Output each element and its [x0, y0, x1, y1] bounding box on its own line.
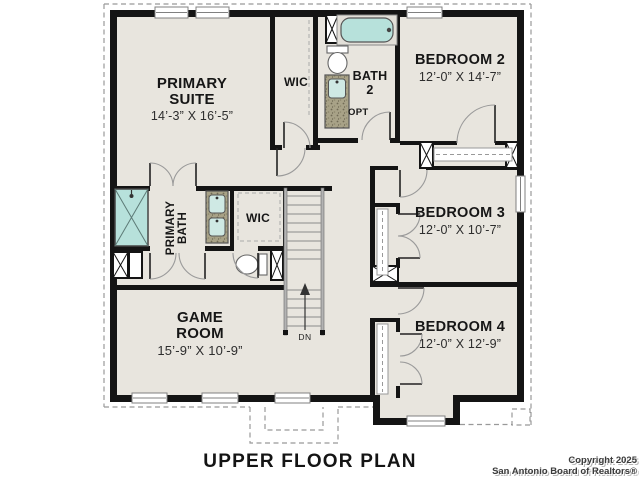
- room-name: GAME ROOM: [160, 310, 240, 342]
- optional-feature-label: OPT: [348, 107, 382, 118]
- shower-icon: [115, 189, 148, 246]
- toilet-icon-bath2: [327, 46, 348, 74]
- room-name: BATH 2: [352, 70, 388, 97]
- vanity-icon-bath2: [325, 75, 349, 128]
- room-label-wic-middle: WIC: [237, 212, 279, 225]
- copyright-watermark: Copyright 2025 San Antonio Board of Real…: [492, 455, 637, 477]
- room-label-primary-suite: PRIMARY SUITE 14’-3” X 16’-5”: [142, 76, 242, 123]
- stairs-down-label: DN: [291, 332, 319, 342]
- room-label-wic-upper: WIC: [276, 76, 316, 89]
- room-name: WIC: [276, 76, 316, 89]
- room-name: BEDROOM 2: [397, 53, 523, 69]
- room-dims: 14’-3” X 16’-5”: [142, 109, 242, 123]
- room-label-bedroom-4: BEDROOM 4 12’-0” X 12’-9”: [397, 320, 523, 351]
- room-label-game-room: GAME ROOM 15’-9” X 10’-9”: [145, 310, 255, 358]
- bathtub-icon: [337, 15, 397, 45]
- vanity-icon-primary: [206, 191, 228, 243]
- room-label-primary-bath: PRIMARY BATH: [149, 193, 205, 263]
- room-name: BEDROOM 3: [397, 206, 523, 222]
- room-name: BEDROOM 4: [397, 320, 523, 336]
- room-name: PRIMARY BATH: [165, 197, 190, 259]
- room-name: PRIMARY SUITE: [142, 76, 242, 108]
- room-label-bedroom-2: BEDROOM 2 12’-0” X 14’-7”: [397, 53, 523, 84]
- plan-title: UPPER FLOOR PLAN: [90, 451, 530, 473]
- copyright-line2: San Antonio Board of Realtors®: [492, 466, 637, 477]
- room-dims: 15’-9” X 10’-9”: [145, 343, 255, 358]
- toilet-icon-primary: [236, 254, 267, 275]
- copyright-line1: Copyright 2025: [492, 455, 637, 466]
- room-dims: 12’-0” X 10’-7”: [397, 223, 523, 237]
- floor-plan-page: PRIMARY SUITE 14’-3” X 16’-5” WIC BATH 2…: [0, 0, 640, 480]
- floor-plan-drawing: [0, 0, 640, 480]
- room-name: WIC: [237, 212, 279, 225]
- room-label-bedroom-3: BEDROOM 3 12’-0” X 10’-7”: [397, 206, 523, 237]
- room-dims: 12’-0” X 12’-9”: [397, 337, 523, 351]
- room-dims: 12’-0” X 14’-7”: [397, 70, 523, 84]
- room-label-bath-2: BATH 2: [352, 70, 388, 97]
